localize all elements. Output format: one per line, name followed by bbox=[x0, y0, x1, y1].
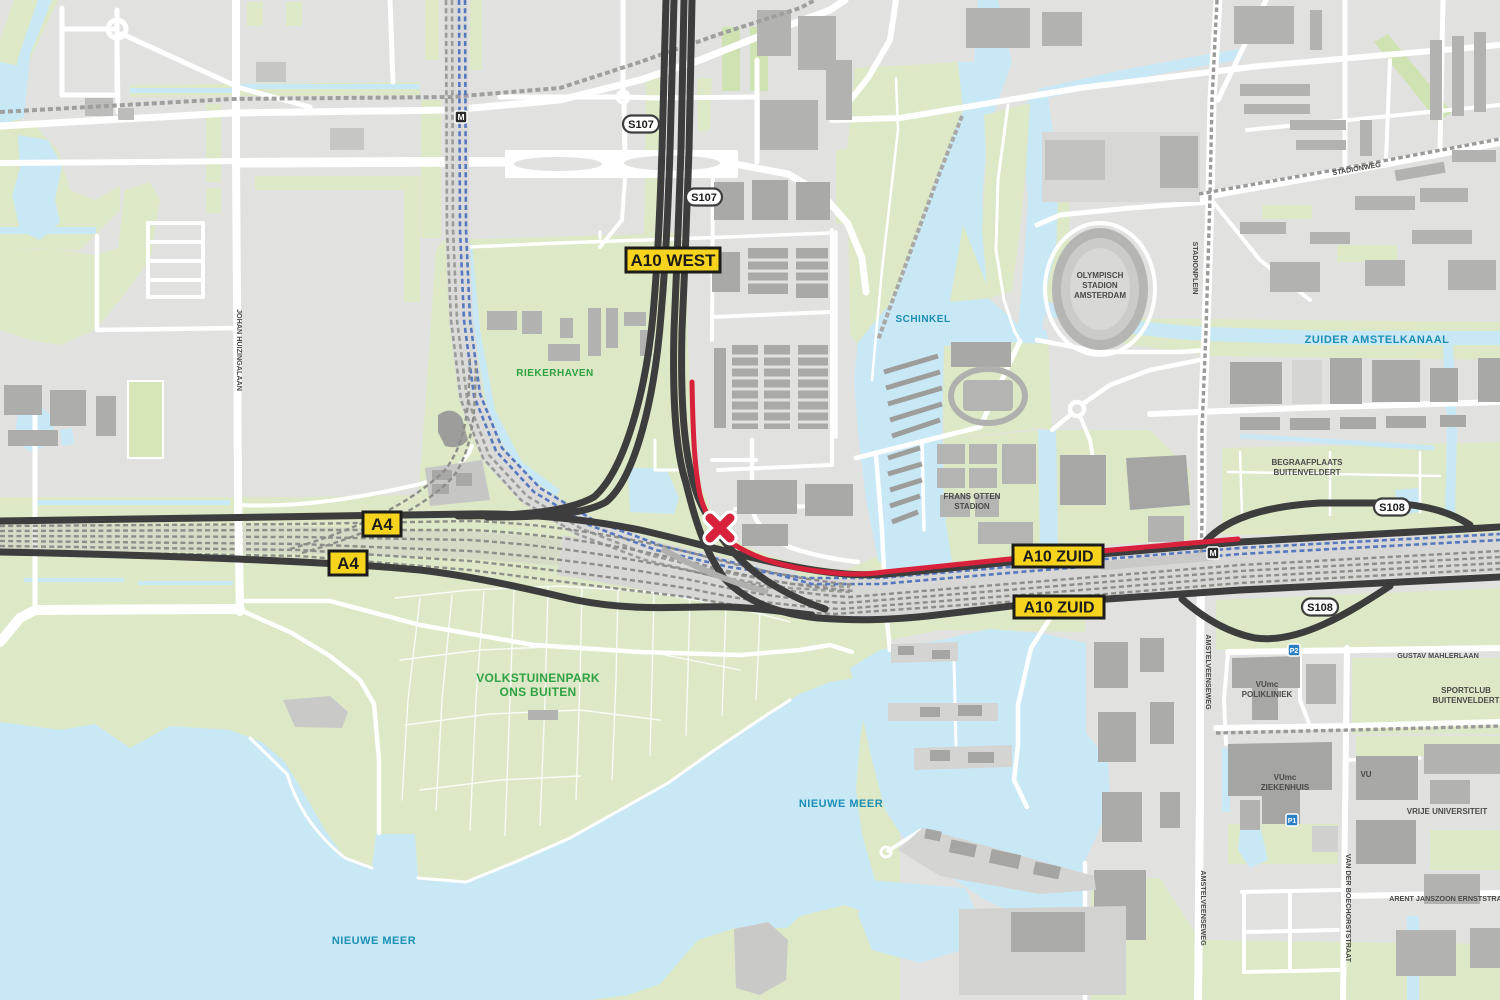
svg-text:AMSTERDAM: AMSTERDAM bbox=[1074, 291, 1126, 300]
svg-text:FRANS OTTEN: FRANS OTTEN bbox=[944, 492, 1001, 501]
svg-text:BEGRAAFPLAATS: BEGRAAFPLAATS bbox=[1272, 458, 1344, 467]
svg-text:S107: S107 bbox=[628, 119, 654, 131]
svg-text:A10 WEST: A10 WEST bbox=[630, 251, 716, 270]
svg-text:SCHINKEL: SCHINKEL bbox=[895, 314, 950, 325]
svg-text:NIEUWE MEER: NIEUWE MEER bbox=[332, 935, 416, 947]
svg-text:STADION: STADION bbox=[1082, 281, 1118, 290]
svg-text:OLYMPISCH: OLYMPISCH bbox=[1077, 271, 1124, 280]
svg-text:GUSTAV MAHLERLAAN: GUSTAV MAHLERLAAN bbox=[1397, 651, 1479, 660]
svg-text:BUITENVELDERT: BUITENVELDERT bbox=[1432, 696, 1499, 705]
svg-text:AMSTELVEENSEWEG: AMSTELVEENSEWEG bbox=[1199, 870, 1208, 946]
svg-text:VAN DER BOECHORSTSTRAAT: VAN DER BOECHORSTSTRAAT bbox=[1344, 854, 1353, 963]
svg-text:POLIKLINIEK: POLIKLINIEK bbox=[1242, 690, 1293, 699]
svg-text:A10 ZUID: A10 ZUID bbox=[1023, 600, 1094, 617]
svg-text:NIEUWE MEER: NIEUWE MEER bbox=[799, 798, 883, 810]
svg-text:ZIEKENHUIS: ZIEKENHUIS bbox=[1261, 783, 1310, 792]
svg-text:BUITENVELDERT: BUITENVELDERT bbox=[1273, 468, 1340, 477]
svg-text:P1: P1 bbox=[1288, 818, 1297, 825]
svg-text:A4: A4 bbox=[371, 515, 393, 534]
svg-text:VOLKSTUINENPARK: VOLKSTUINENPARK bbox=[476, 671, 600, 685]
svg-text:M: M bbox=[457, 112, 464, 122]
svg-text:RIEKERHAVEN: RIEKERHAVEN bbox=[516, 368, 594, 379]
svg-text:JOHAN HUIZINGALAAN: JOHAN HUIZINGALAAN bbox=[235, 309, 244, 391]
svg-text:M: M bbox=[1209, 548, 1216, 558]
svg-text:S107: S107 bbox=[691, 192, 717, 204]
svg-text:A10 ZUID: A10 ZUID bbox=[1022, 549, 1093, 566]
svg-text:STADION: STADION bbox=[954, 502, 990, 511]
svg-text:VUmc: VUmc bbox=[1274, 773, 1297, 782]
svg-text:P2: P2 bbox=[1290, 648, 1299, 655]
svg-text:A4: A4 bbox=[337, 554, 359, 573]
svg-text:VUmc: VUmc bbox=[1256, 680, 1279, 689]
svg-text:SPORTCLUB: SPORTCLUB bbox=[1441, 686, 1491, 695]
svg-text:S108: S108 bbox=[1379, 502, 1405, 514]
svg-text:ARENT JANSZOON ERNSTSTRAAT: ARENT JANSZOON ERNSTSTRAAT bbox=[1389, 894, 1500, 903]
svg-text:VU: VU bbox=[1360, 770, 1371, 779]
svg-text:VRIJE UNIVERSITEIT: VRIJE UNIVERSITEIT bbox=[1407, 807, 1488, 816]
svg-text:AMSTELVEENSEWEG: AMSTELVEENSEWEG bbox=[1204, 634, 1213, 710]
svg-text:ONS BUITEN: ONS BUITEN bbox=[499, 685, 576, 699]
svg-text:S108: S108 bbox=[1307, 602, 1333, 614]
svg-text:STADIONPLEIN: STADIONPLEIN bbox=[1191, 242, 1200, 295]
svg-text:ZUIDER AMSTELKANAAL: ZUIDER AMSTELKANAAL bbox=[1305, 334, 1450, 346]
